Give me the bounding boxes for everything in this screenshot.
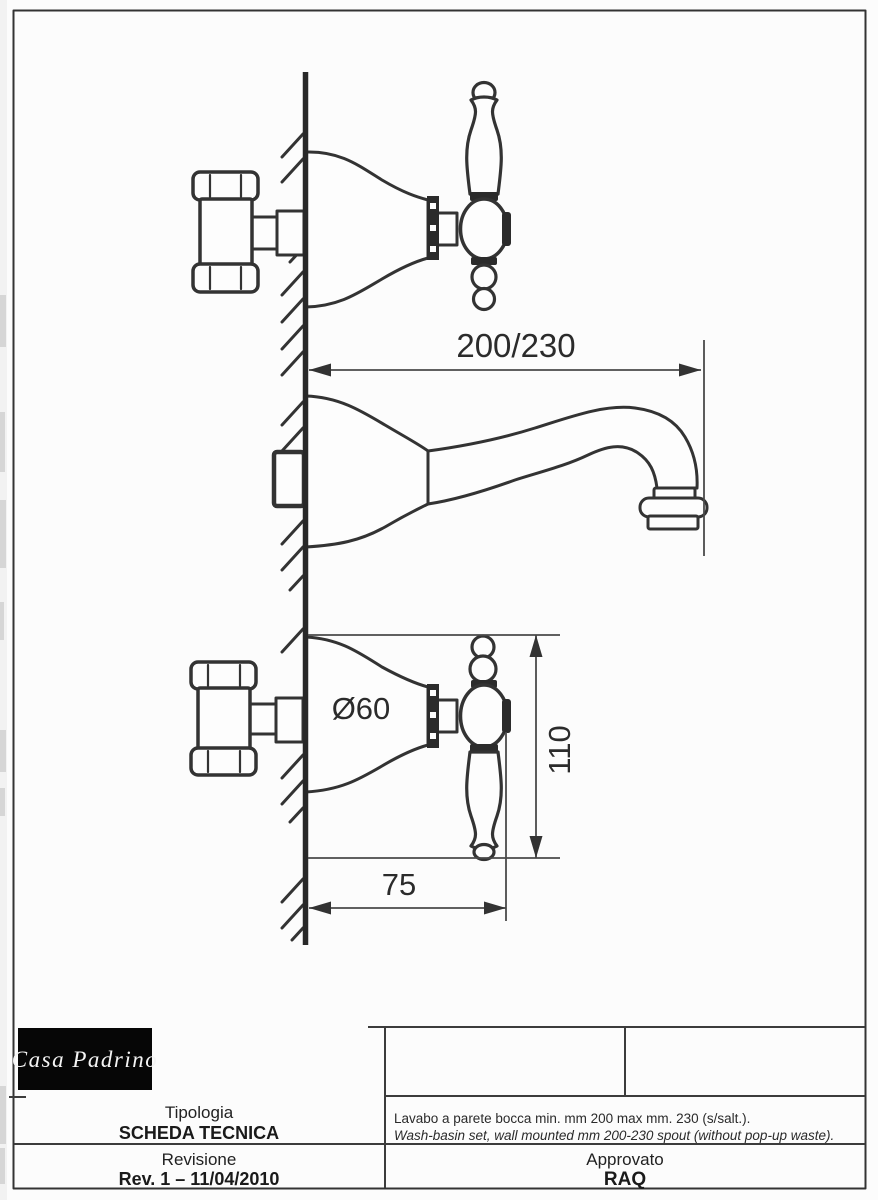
dim-label-spout-reach: 200/230	[456, 327, 575, 364]
technical-sheet-page: 200/230 110 75 Ø60 Casa Padrino Tipologi…	[0, 0, 878, 1200]
fitting-body	[200, 199, 252, 265]
escutcheon-bell	[306, 152, 428, 307]
scan-artifacts	[0, 0, 7, 1200]
description-english: Wash-basin set, wall mounted mm 200-230 …	[394, 1128, 834, 1143]
bottom-valve-trim	[306, 636, 511, 860]
description-italian: Lavabo a parete bocca min. mm 200 max mm…	[394, 1111, 750, 1126]
fitting-hex-nut-bottom	[193, 264, 258, 292]
title-block: Casa Padrino Tipologia SCHEDA TECNICA La…	[9, 1027, 865, 1190]
logo-text: Casa Padrino	[12, 1047, 158, 1072]
handle-hub-edge	[502, 212, 511, 246]
top-valve-trim	[306, 83, 511, 310]
dim-label-handle-offset: 75	[382, 867, 416, 902]
fitting-flange	[277, 211, 304, 255]
wall-connector-square	[274, 452, 304, 506]
handle-stem	[437, 213, 457, 245]
fitting-flange	[276, 698, 303, 742]
dim-label-handle-height: 110	[542, 725, 577, 774]
tipologia-label: Tipologia	[165, 1103, 234, 1122]
fitting-pipe	[251, 217, 279, 249]
fitting-body	[198, 688, 250, 749]
handle-hub	[461, 685, 508, 747]
handle-hub-edge	[502, 699, 511, 733]
page-border	[14, 11, 866, 1189]
revisione-label: Revisione	[162, 1150, 237, 1169]
spout-escutcheon-bell	[306, 396, 428, 547]
label-handle-diameter: Ø60	[332, 691, 391, 726]
fitting-hex-nut-bottom	[191, 748, 256, 775]
handle-lever-up	[467, 97, 502, 194]
aerator	[640, 488, 707, 529]
handle-hub	[461, 199, 508, 259]
bottom-valve-supply-fitting	[191, 662, 303, 775]
handle-ball-large	[472, 265, 496, 289]
approvato-value: RAQ	[604, 1169, 646, 1190]
fitting-hex-nut-top	[193, 172, 258, 200]
top-valve-supply-fitting	[193, 172, 304, 292]
technical-drawing-sheet: 200/230 110 75 Ø60 Casa Padrino Tipologi…	[0, 0, 878, 1200]
tipologia-value: SCHEDA TECNICA	[119, 1123, 279, 1143]
handle-stem	[437, 700, 457, 732]
revisione-value: Rev. 1 – 11/04/2010	[119, 1169, 280, 1189]
handle-ball-large	[470, 656, 496, 682]
approvato-label: Approvato	[586, 1150, 664, 1169]
handle-lever-down	[467, 752, 502, 849]
fitting-pipe	[249, 704, 277, 734]
fitting-hex-nut-top	[191, 662, 256, 689]
handle-ball-small	[474, 289, 495, 310]
spout-assembly	[274, 396, 707, 547]
